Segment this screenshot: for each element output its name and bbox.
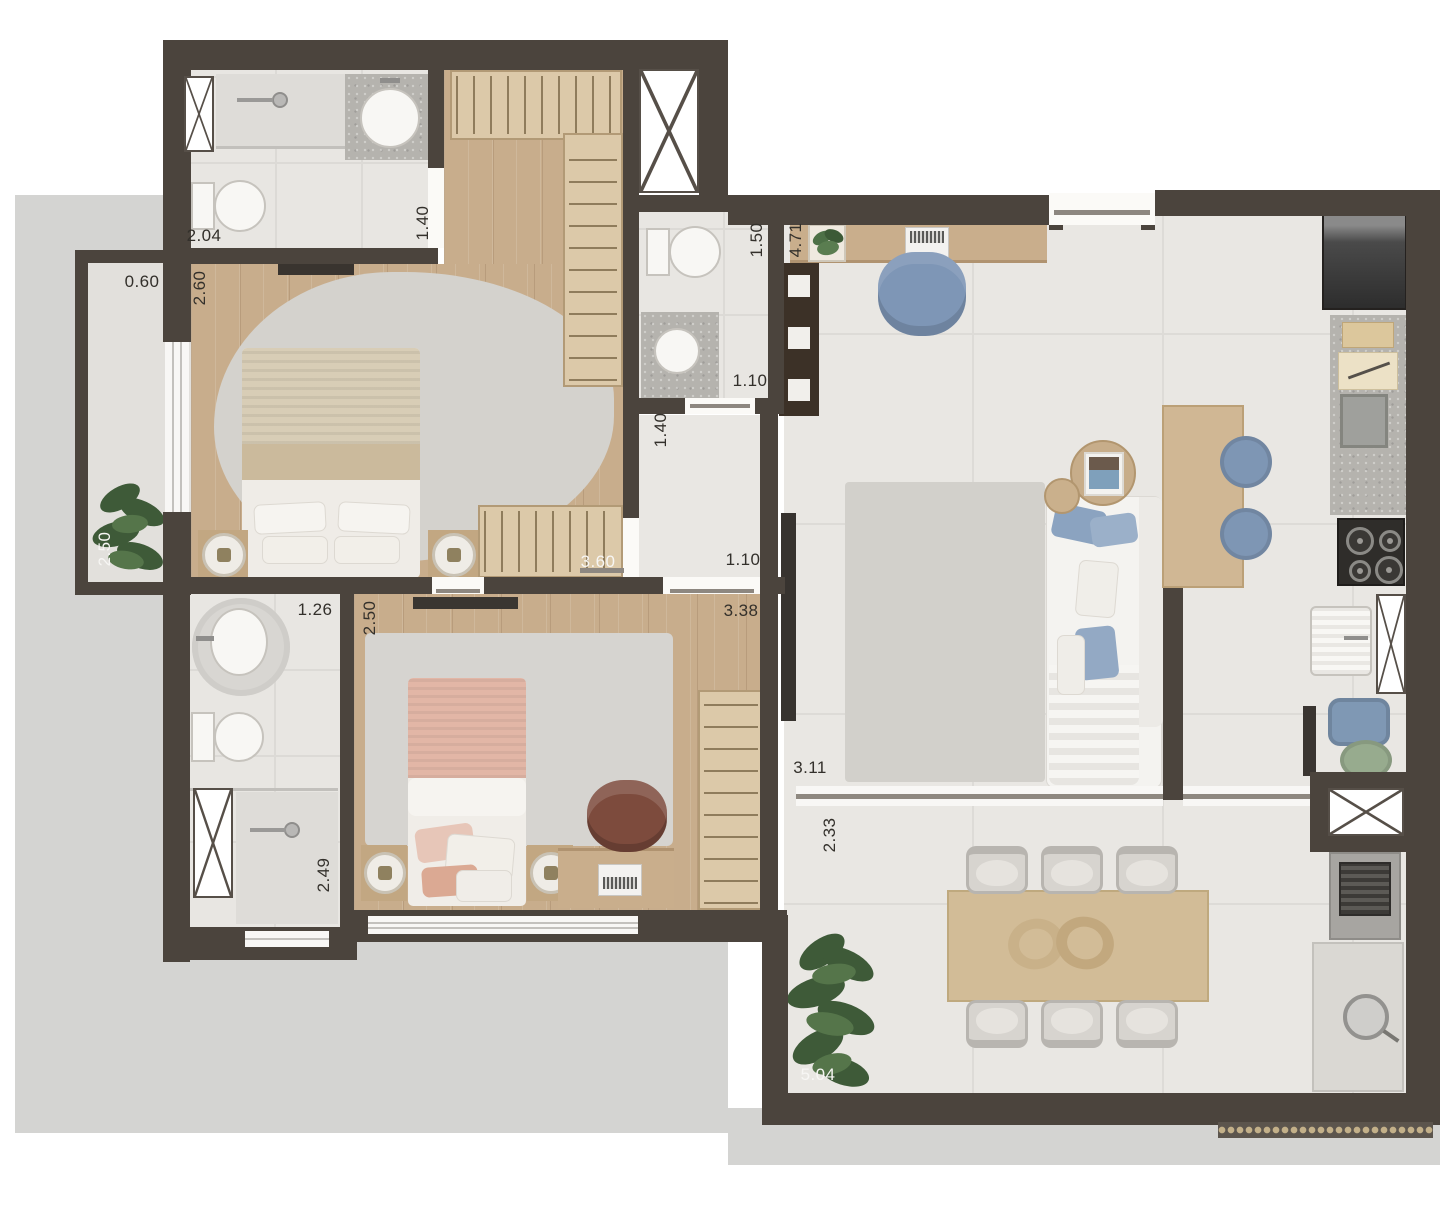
dimension-label: 3.60	[581, 552, 616, 572]
nightstand-lamp	[432, 533, 476, 577]
door-jamb	[1141, 225, 1155, 230]
dining-chair	[1041, 846, 1103, 894]
bed-fold	[408, 778, 526, 816]
shaft-duct	[184, 76, 214, 152]
dimension-label: 3.38	[724, 601, 759, 621]
dining-chair	[966, 846, 1028, 894]
shower-head	[284, 822, 300, 838]
shower-arm	[237, 98, 273, 102]
bed-pillow	[334, 536, 400, 564]
cooktop	[1337, 518, 1405, 586]
nightstand-lamp	[364, 852, 406, 894]
dimension-label: 2.33	[820, 818, 840, 853]
wall-segment	[191, 248, 438, 264]
sink-basin	[654, 328, 700, 374]
bed-pillow-white	[456, 870, 512, 902]
dimension-label: 1.26	[298, 600, 333, 620]
dimension-label: 2.04	[187, 226, 222, 246]
shaft-duct	[1376, 594, 1406, 694]
sofa	[1046, 496, 1162, 788]
dimension-label: 1.10	[733, 371, 768, 391]
shower-area	[216, 74, 354, 148]
wall-segment	[768, 197, 784, 412]
burner	[1379, 530, 1401, 552]
shelf-candle	[788, 327, 810, 349]
nightstand-lamp	[202, 533, 246, 577]
wardrobe-shelf-marks	[704, 696, 758, 904]
door-jamb	[1049, 225, 1063, 230]
bed-blanket-pink	[408, 678, 526, 778]
wall-segment	[163, 262, 191, 342]
pergola-strip	[1218, 1122, 1433, 1138]
door-leaf	[670, 589, 754, 593]
shaft-duct	[193, 788, 233, 898]
terrace-slider-rail	[1183, 794, 1310, 799]
toilet-tank	[646, 228, 670, 276]
barbecue-grill	[1329, 852, 1401, 940]
balcony-window	[165, 342, 189, 512]
master-tv-console	[278, 263, 354, 275]
desk-chair-brown	[587, 780, 667, 852]
dimension-label: 4.71	[786, 223, 806, 258]
bed-pillow	[262, 536, 328, 564]
burner	[1346, 527, 1374, 555]
faucet	[380, 78, 400, 83]
balcony-railing	[75, 250, 88, 595]
island-stool	[1220, 436, 1272, 488]
shower-head	[272, 92, 288, 108]
sofa-backrest	[1139, 497, 1163, 727]
dimension-label: 2.50	[360, 601, 380, 636]
burner	[1375, 556, 1403, 584]
toilet-tank	[191, 182, 215, 230]
dining-chair	[1116, 1000, 1178, 1048]
tv-panel	[781, 513, 796, 721]
wall-segment	[699, 65, 728, 197]
balcony-railing	[75, 582, 191, 595]
sink-basin	[360, 88, 420, 148]
shelf-candle	[788, 379, 810, 401]
wall-segment	[762, 1093, 1440, 1125]
bedroom2-tv-console	[413, 597, 518, 609]
dimension-label: 1.50	[747, 223, 767, 258]
wall-segment	[728, 195, 1049, 225]
cutting-board	[1338, 352, 1398, 390]
wall-segment	[163, 577, 432, 594]
sofa-pillow-white	[1057, 635, 1085, 695]
dimension-label: 3.11	[793, 758, 826, 778]
island-stool	[1220, 508, 1272, 560]
office-chair	[878, 252, 966, 336]
shower-glass	[216, 146, 354, 149]
kitchen-sink	[1340, 394, 1388, 448]
toilet-tank	[191, 712, 215, 762]
master-bed	[242, 348, 420, 578]
dimension-label: 2.60	[190, 271, 210, 306]
laundry-basket-blue	[1328, 698, 1390, 746]
bed-band	[242, 444, 420, 480]
entrance-door	[1049, 193, 1155, 225]
wall-segment	[340, 594, 354, 910]
dimension-label: 0.60	[125, 272, 160, 292]
bed-blanket	[242, 348, 420, 444]
bread-board	[1342, 322, 1394, 348]
dimension-label: 1.40	[651, 413, 671, 448]
wall-segment	[623, 197, 639, 518]
balcony-railing	[75, 250, 191, 263]
kitchen-faucet	[1386, 414, 1404, 418]
closet-wardrobe-top	[450, 70, 622, 140]
wall-segment	[163, 512, 191, 580]
wall-segment	[1155, 190, 1440, 216]
bedroom-2-window	[368, 916, 638, 934]
bed-pillow	[253, 501, 326, 535]
knife	[1348, 362, 1390, 380]
sofa-pillow-white	[1075, 559, 1120, 618]
tank-faucet	[1344, 636, 1368, 640]
tray-picture	[1089, 457, 1119, 489]
wall-segment	[760, 412, 778, 922]
dining-chair	[966, 1000, 1028, 1048]
door-leaf	[690, 404, 750, 408]
dimension-label: 5.04	[801, 1065, 836, 1085]
coffee-table-small	[1044, 478, 1080, 514]
dimension-label: 2.50	[95, 532, 115, 567]
wall-segment	[1406, 190, 1440, 1123]
wall-panel	[1303, 706, 1316, 776]
wall-segment	[428, 68, 444, 168]
laptop	[598, 864, 642, 896]
floor-plan: 2.04 1.40 0.60 2.60 2.50 1.50 4.71 1.10 …	[0, 0, 1445, 1227]
bathroom-3-window	[245, 931, 329, 947]
living-rug	[845, 482, 1045, 782]
wall-segment	[762, 915, 788, 1103]
shelf-candle	[788, 275, 810, 297]
shaft-elevator	[639, 69, 699, 193]
shaft-duct	[1328, 788, 1404, 836]
dimension-label: 2.49	[314, 858, 334, 893]
ladder-shelf	[779, 263, 819, 416]
exterior-slab-bottom	[15, 940, 728, 1133]
wardrobe-hanging-marks	[456, 76, 616, 134]
terrace-slider-rail	[796, 794, 1163, 799]
gourmet-sink	[1343, 994, 1389, 1040]
refrigerator	[1322, 212, 1407, 310]
bedroom2-wardrobe	[698, 690, 764, 910]
wardrobe-shelf-marks	[569, 139, 617, 381]
master-bedroom-door	[623, 518, 639, 577]
laptop-keyboard	[910, 231, 944, 243]
faucet	[196, 636, 214, 641]
toilet-bowl	[669, 226, 721, 278]
wall-segment	[163, 592, 190, 962]
grill-grate	[1339, 862, 1391, 916]
sofa-pillow-blue	[1089, 512, 1139, 548]
shower-arm	[250, 828, 286, 832]
wall-segment	[628, 398, 685, 414]
bed-pillow	[337, 501, 410, 535]
toilet-bowl	[214, 712, 264, 762]
toilet-bowl	[214, 180, 266, 232]
dining-chair	[1041, 1000, 1103, 1048]
kitchen-island	[1162, 405, 1244, 588]
wall-segment	[623, 65, 639, 197]
wall-segment	[1163, 588, 1183, 800]
door-leaf	[436, 589, 480, 593]
closet-wardrobe-side	[563, 133, 623, 387]
dimension-label: 1.40	[413, 206, 433, 241]
laptop-keyboard	[603, 877, 637, 889]
dimension-label: 1.10	[726, 550, 761, 570]
dining-chair	[1116, 846, 1178, 894]
bedroom2-bed	[408, 678, 526, 906]
entrance-door-leaf	[1054, 210, 1150, 215]
laundry-tank	[1310, 606, 1372, 676]
burner	[1349, 560, 1371, 582]
wall-segment	[484, 577, 663, 594]
desk-plant	[810, 224, 846, 262]
wall-segment	[163, 40, 728, 70]
sink-basin	[210, 608, 268, 676]
